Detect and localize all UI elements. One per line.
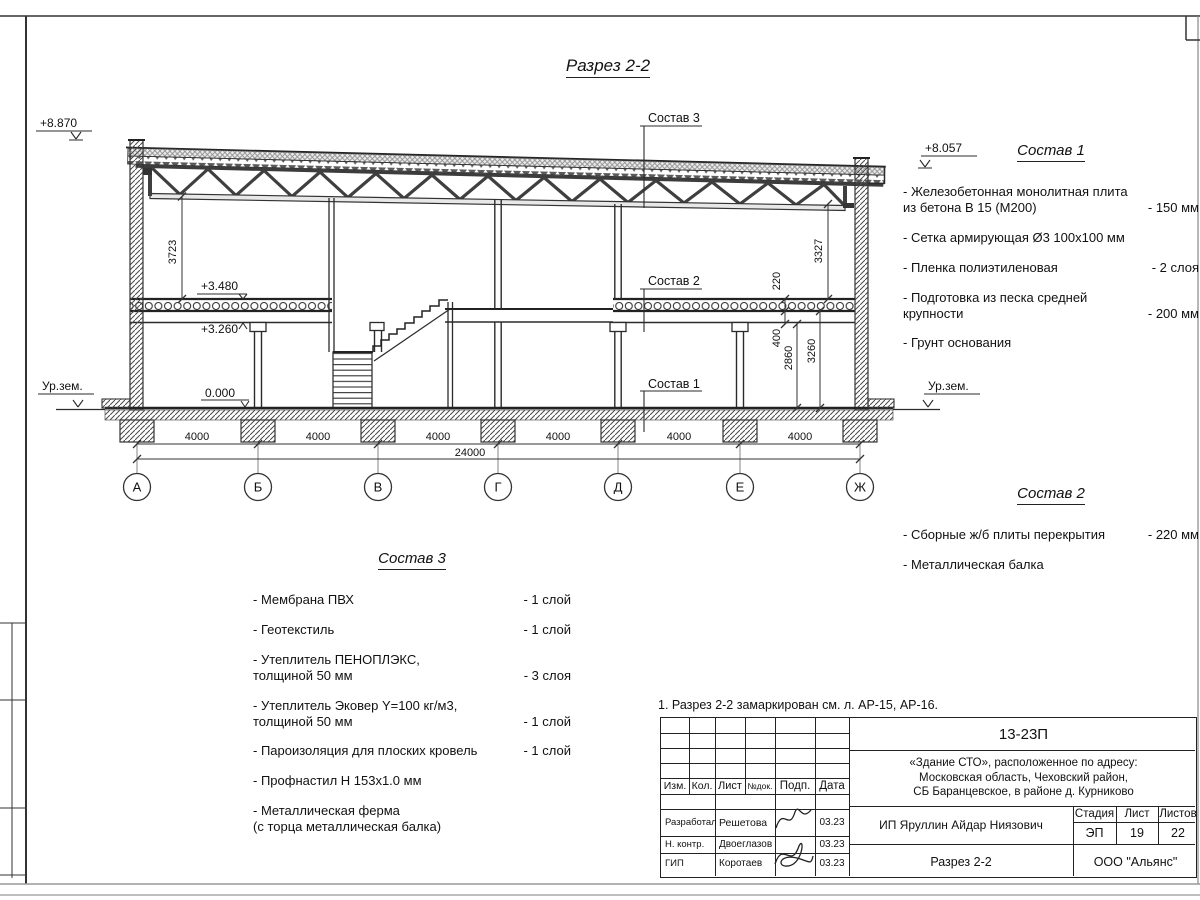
composition-callouts: Состав 3 Состав 2 Состав 1 — [640, 111, 702, 432]
dim-first-floor: 3260 — [806, 339, 818, 363]
axis-label: Б — [254, 480, 263, 495]
sostav1-title: Состав 1 — [903, 142, 1199, 160]
signature — [773, 802, 815, 836]
row-name: Коротаев — [717, 853, 775, 873]
sostav2-list: Состав 2 - Сборные ж/б плиты перекрытия-… — [903, 485, 1199, 587]
axis-label: Г — [494, 480, 501, 495]
list-item: - Пароизоляция для плоских кровель- 1 сл… — [253, 743, 571, 759]
sheet-note: 1. Разрез 2-2 замаркирован см. л. АР-15,… — [658, 698, 938, 712]
client-name: ИП Яруллин Айдар Ниязович — [849, 806, 1073, 844]
list-item: - Металлическая ферма (с торца металличе… — [253, 803, 571, 835]
axis-label: В — [374, 480, 383, 495]
list-item: - Сетка армирующая Ø3 100х100 мм — [903, 230, 1199, 246]
bay-dim: 4000 — [185, 431, 209, 443]
col-date: Дата — [815, 778, 849, 794]
elev-ground-left: Ур.зем. — [42, 379, 83, 393]
stair-landing-strip — [445, 309, 613, 322]
list-item: - Утеплитель Эковер Y=100 кг/м3, толщино… — [253, 698, 571, 730]
list-item: - Железобетонная монолитная плита из бет… — [903, 184, 1199, 216]
roof-assembly — [126, 147, 886, 186]
col-kol: Кол. — [689, 778, 715, 794]
row-name: Решетова — [717, 809, 775, 836]
sheets-total: 22 — [1158, 822, 1198, 844]
callout-sostav3: Состав 3 — [648, 111, 700, 125]
list-item: - Подготовка из песка средней крупности-… — [903, 290, 1199, 322]
axis-label: Е — [736, 480, 745, 495]
elev-slab-top: +3.480 — [201, 279, 238, 293]
dim-hall-left: 3723 — [167, 240, 179, 264]
sheets-label: Листов — [1158, 806, 1198, 822]
col-list: Лист — [715, 778, 745, 794]
sostav3-title: Состав 3 — [253, 550, 571, 568]
project-name: «Здание СТО», расположенное по адресу: М… — [849, 750, 1198, 806]
col-doc: №док. — [745, 778, 775, 794]
doc-number: 13-23П — [849, 718, 1198, 750]
sheet-label: Лист — [1116, 806, 1158, 822]
col-sign: Подп. — [775, 778, 815, 794]
sostav2-title: Состав 2 — [903, 485, 1199, 503]
dim-beam: 400 — [771, 329, 783, 347]
list-item: - Сборные ж/б плиты перекрытия- 220 мм — [903, 527, 1199, 543]
row-date: 03.23 — [815, 809, 849, 836]
row-name: Двоеглазов — [717, 836, 775, 853]
elev-slab-bottom: +3.260 — [201, 322, 238, 336]
col-izm: Изм. — [661, 778, 689, 794]
bay-dim: 4000 — [426, 431, 450, 443]
row-role: Разработал — [663, 809, 715, 836]
list-item: - Геотекстиль- 1 слой — [253, 622, 571, 638]
page-title: Разрез 2-2 — [538, 56, 678, 76]
sostav1-list: Состав 1 - Железобетонная монолитная пли… — [903, 142, 1199, 365]
sheet-number: 19 — [1116, 822, 1158, 844]
list-item: - Утеплитель ПЕНОПЛЭКС, толщиной 50 мм- … — [253, 652, 571, 684]
list-item: - Мембрана ПВХ- 1 слой — [253, 592, 571, 608]
staircase — [333, 300, 450, 408]
axis-label: Д — [614, 480, 623, 495]
elev-floor: 0.000 — [205, 386, 235, 400]
dim-clear-first: 2860 — [783, 346, 795, 370]
row-date: 03.23 — [815, 836, 849, 853]
row-role: Н. контр. — [663, 836, 715, 853]
bay-dim: 4000 — [546, 431, 570, 443]
stage-value: ЭП — [1073, 822, 1116, 844]
list-item: - Пленка полиэтиленовая- 2 слоя — [903, 260, 1199, 276]
row-date: 03.23 — [815, 853, 849, 873]
callout-sostav2: Состав 2 — [648, 274, 700, 288]
drawing-sheet: 3723 3327 220 400 2860 3260 4000 4000 40… — [0, 0, 1200, 900]
list-item: - Грунт основания — [903, 335, 1199, 351]
stage-label: Стадия — [1073, 806, 1116, 822]
callout-sostav1: Состав 1 — [648, 377, 700, 391]
dim-hall-right: 3327 — [813, 239, 825, 263]
dim-slab: 220 — [771, 272, 783, 290]
floor-slab-right — [613, 299, 855, 323]
bay-dim: 4000 — [306, 431, 330, 443]
list-item: - Профнастил Н 153х1.0 мм — [253, 773, 571, 789]
company-name: ООО "Альянс" — [1073, 844, 1198, 879]
elev-parapet-left: +8.870 — [40, 116, 77, 130]
drawing-name: Разрез 2-2 — [849, 844, 1073, 879]
signature — [771, 834, 817, 878]
sostav3-list: Состав 3 - Мембрана ПВХ- 1 слой - Геотек… — [253, 550, 571, 849]
elev-ground-right: Ур.зем. — [928, 379, 969, 393]
floor-slab-left — [130, 299, 332, 323]
bay-dim: 4000 — [788, 431, 812, 443]
bay-dim: 4000 — [667, 431, 691, 443]
axis-label: Ж — [854, 480, 866, 495]
row-role: ГИП — [663, 853, 715, 873]
axis-label: А — [133, 480, 142, 495]
total-dim: 24000 — [455, 447, 486, 459]
axis-bubbles: А Б В Г Д Е Ж — [124, 474, 874, 501]
title-block: Изм. Кол. Лист №док. Подп. Дата Разработ… — [660, 717, 1197, 878]
list-item: - Металлическая балка — [903, 557, 1199, 573]
